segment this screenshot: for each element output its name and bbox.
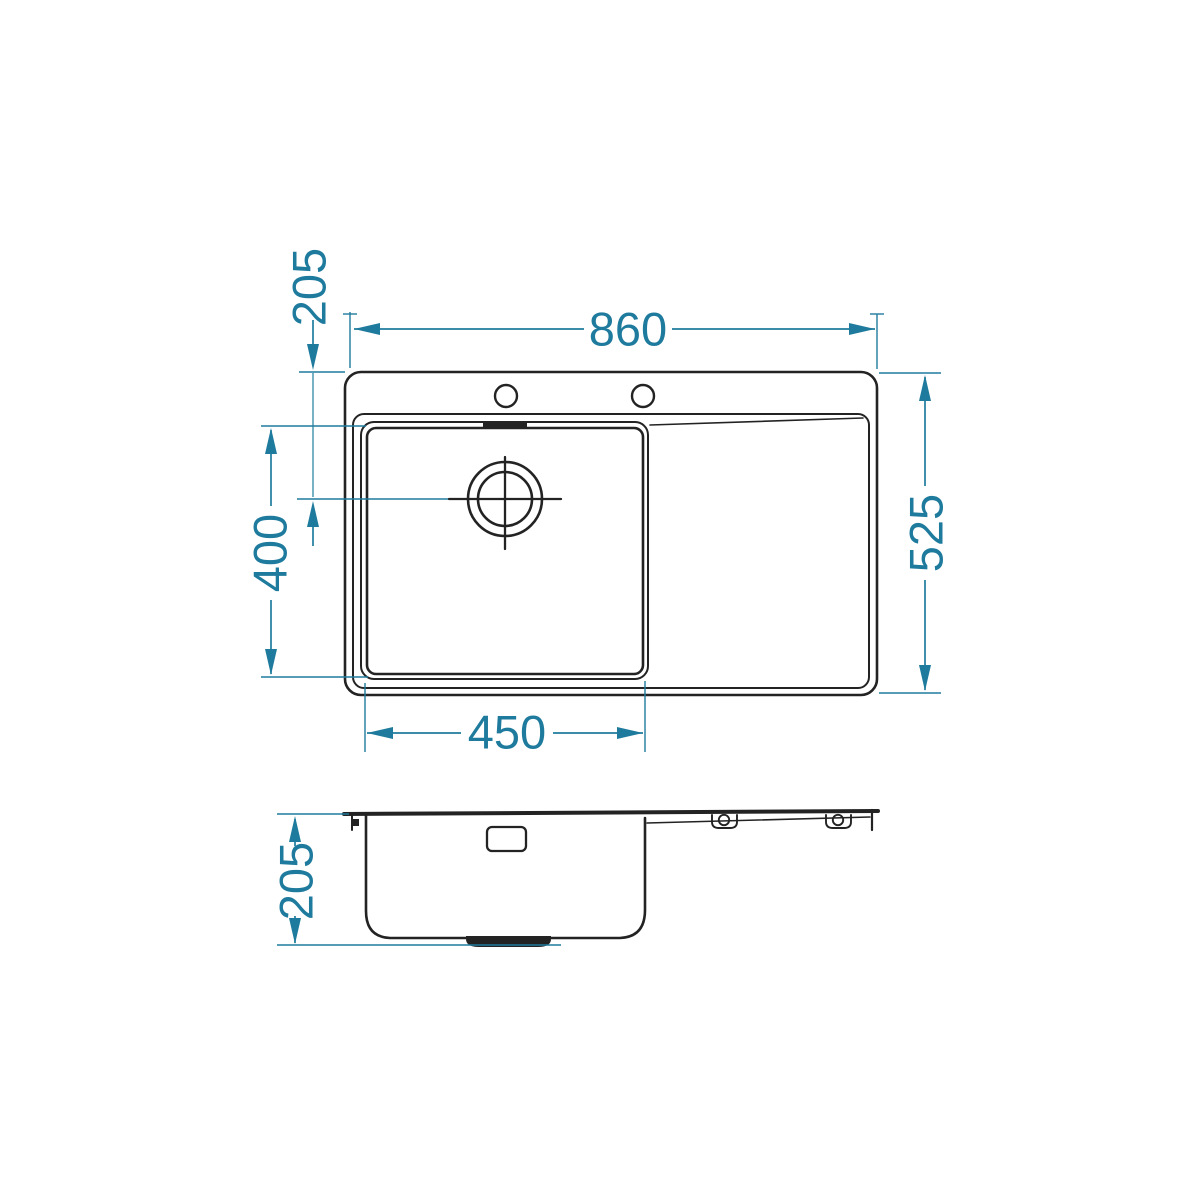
left-clip-foot xyxy=(352,819,359,826)
overflow-slot xyxy=(483,422,527,429)
drawing-background xyxy=(0,0,1200,1200)
technical-drawing-page: 860 525 400 xyxy=(0,0,1200,1200)
sink-technical-drawing: 860 525 400 xyxy=(0,0,1200,1200)
dim-overall-width-label: 860 xyxy=(589,303,667,356)
dim-drain-offset-label: 205 xyxy=(283,248,336,326)
dim-bowl-height-label: 205 xyxy=(270,842,323,920)
dim-overall-depth-label: 525 xyxy=(900,494,953,572)
dim-bowl-width-label: 450 xyxy=(468,706,546,759)
dim-bowl-depth-label: 400 xyxy=(244,514,297,592)
